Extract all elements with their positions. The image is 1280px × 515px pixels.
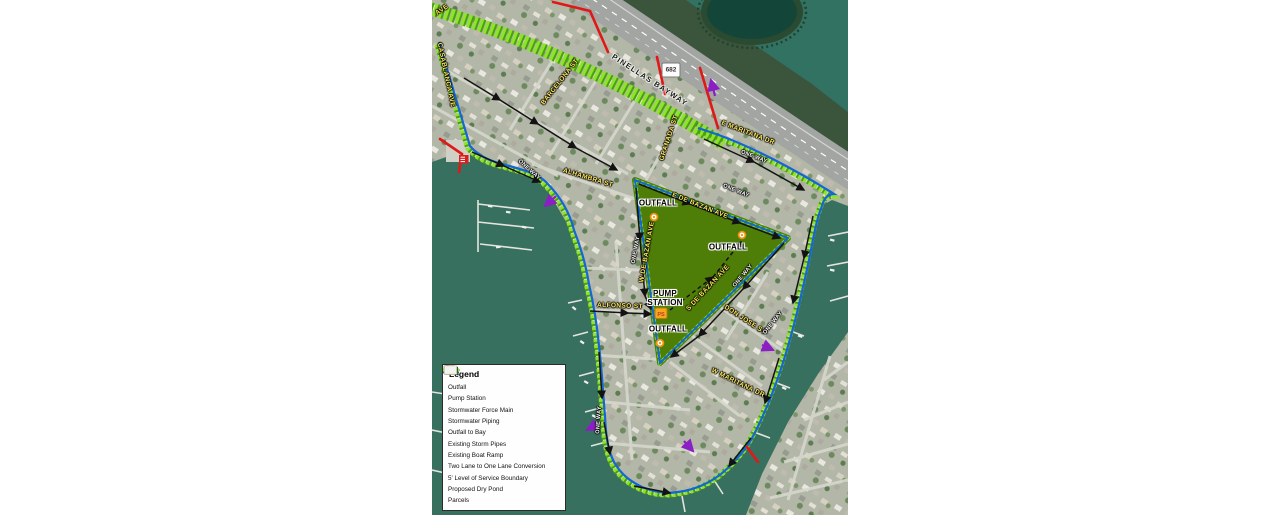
legend-item-los-boundary: 5' Level of Service Boundary <box>448 472 560 483</box>
legend-item-outfall-to-bay: Outfall to Bay <box>448 427 560 438</box>
map-legend: Legend Outfall PS Pump Station S <box>442 364 566 511</box>
parcels-icon <box>443 365 461 375</box>
legend-item-storm-pipes: Existing Storm Pipes <box>448 438 560 449</box>
legend-item-parcels: Parcels <box>448 495 560 506</box>
legend-item-label: Pump Station <box>448 395 486 402</box>
legend-item-boat-ramp: Existing Boat Ramp <box>448 450 560 461</box>
svg-text:PS: PS <box>657 312 665 318</box>
boat-ramp-map-icon <box>459 155 469 164</box>
aerial-map: PS 682 PINELLAS BAYWAY E MARITANA DR ONE… <box>432 0 848 515</box>
legend-item-lane-conversion: Two Lane to One Lane Conversion <box>448 461 560 472</box>
legend-item-label: Parcels <box>448 497 469 504</box>
legend-item-pump-station: PS Pump Station <box>448 393 560 404</box>
legend-item-label: Two Lane to One Lane Conversion <box>448 463 545 470</box>
legend-item-label: Stormwater Force Main <box>448 407 513 414</box>
route-682-shield: 682 <box>662 63 681 78</box>
legend-item-label: Stormwater Piping <box>448 418 499 425</box>
legend-title: Legend <box>449 369 560 379</box>
legend-item-piping: Stormwater Piping <box>448 416 560 427</box>
legend-item-label: Existing Storm Pipes <box>448 441 506 448</box>
pump-station-map-icon: PS <box>655 308 667 319</box>
legend-item-label: 5' Level of Service Boundary <box>448 475 528 482</box>
legend-item-outfall: Outfall <box>448 382 560 393</box>
legend-item-label: Existing Boat Ramp <box>448 452 503 459</box>
legend-item-dry-pond: Proposed Dry Pond <box>448 484 560 495</box>
legend-item-label: Outfall <box>448 384 466 391</box>
page: PS 682 PINELLAS BAYWAY E MARITANA DR ONE… <box>0 0 1280 515</box>
legend-item-force-main: Stormwater Force Main <box>448 405 560 416</box>
legend-item-label: Proposed Dry Pond <box>448 486 503 493</box>
legend-item-label: Outfall to Bay <box>448 429 486 436</box>
